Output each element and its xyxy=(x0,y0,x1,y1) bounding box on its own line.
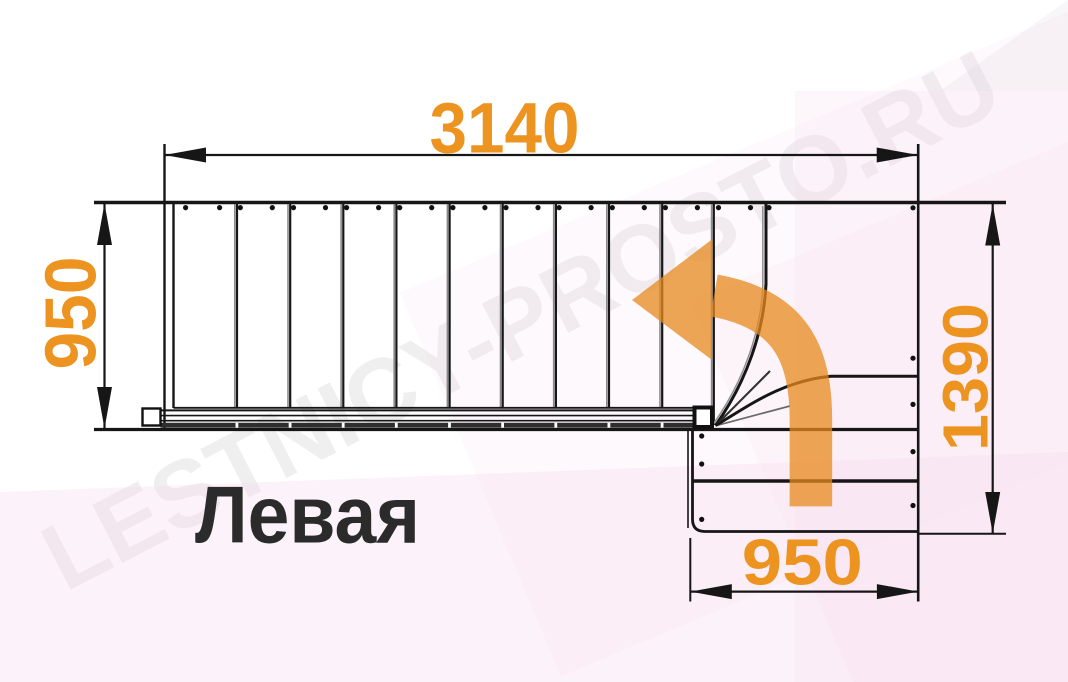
svg-text:1390: 1390 xyxy=(930,303,1002,451)
svg-text:3140: 3140 xyxy=(430,90,580,169)
svg-text:950: 950 xyxy=(32,257,112,370)
svg-text:950: 950 xyxy=(742,526,863,599)
svg-text:Левая: Левая xyxy=(195,471,420,561)
